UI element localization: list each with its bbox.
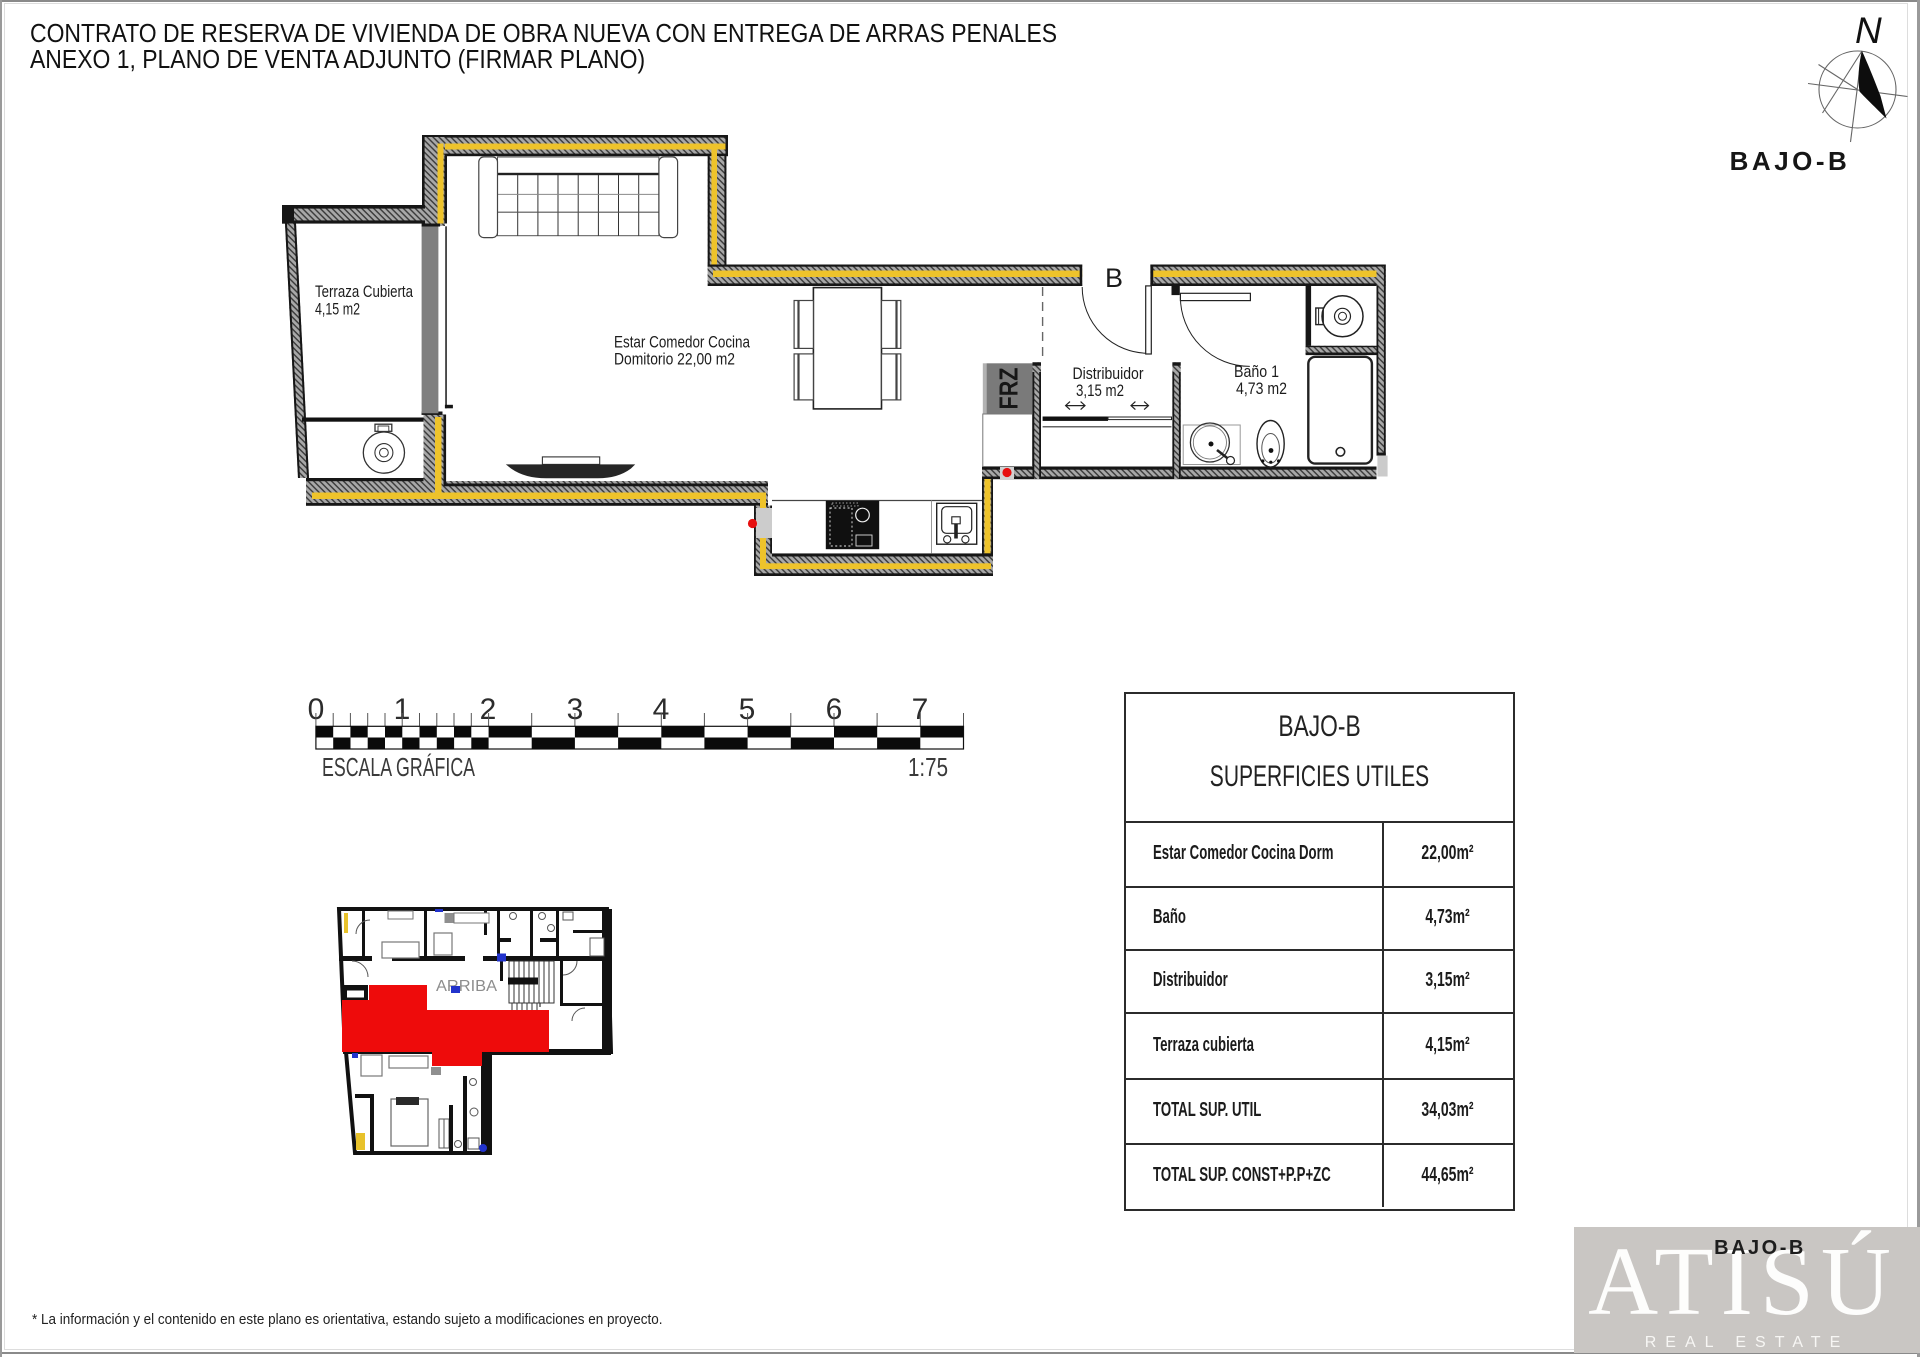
svg-text:Distribuidor: Distribuidor bbox=[1073, 365, 1144, 383]
svg-text:ESCALA GRÁFICA: ESCALA GRÁFICA bbox=[322, 752, 475, 782]
svg-text:N: N bbox=[1855, 10, 1882, 51]
svg-text:5: 5 bbox=[739, 693, 756, 726]
svg-text:4,15 m2: 4,15 m2 bbox=[315, 301, 360, 319]
svg-text:2: 2 bbox=[480, 693, 497, 726]
svg-text:FRZ: FRZ bbox=[994, 367, 1024, 409]
svg-text:Baño 1: Baño 1 bbox=[1234, 363, 1279, 381]
svg-text:Domitorio 22,00 m2: Domitorio 22,00 m2 bbox=[614, 351, 735, 369]
svg-text:B: B bbox=[1105, 263, 1123, 293]
svg-text:Terraza Cubierta: Terraza Cubierta bbox=[315, 283, 414, 301]
svg-text:1:75: 1:75 bbox=[908, 752, 948, 782]
svg-text:ARRIBA: ARRIBA bbox=[436, 978, 497, 995]
svg-text:Estar Comedor Cocina: Estar Comedor Cocina bbox=[614, 334, 751, 352]
svg-text:3,15 m2: 3,15 m2 bbox=[1076, 382, 1124, 400]
svg-text:4,73 m2: 4,73 m2 bbox=[1236, 380, 1287, 398]
